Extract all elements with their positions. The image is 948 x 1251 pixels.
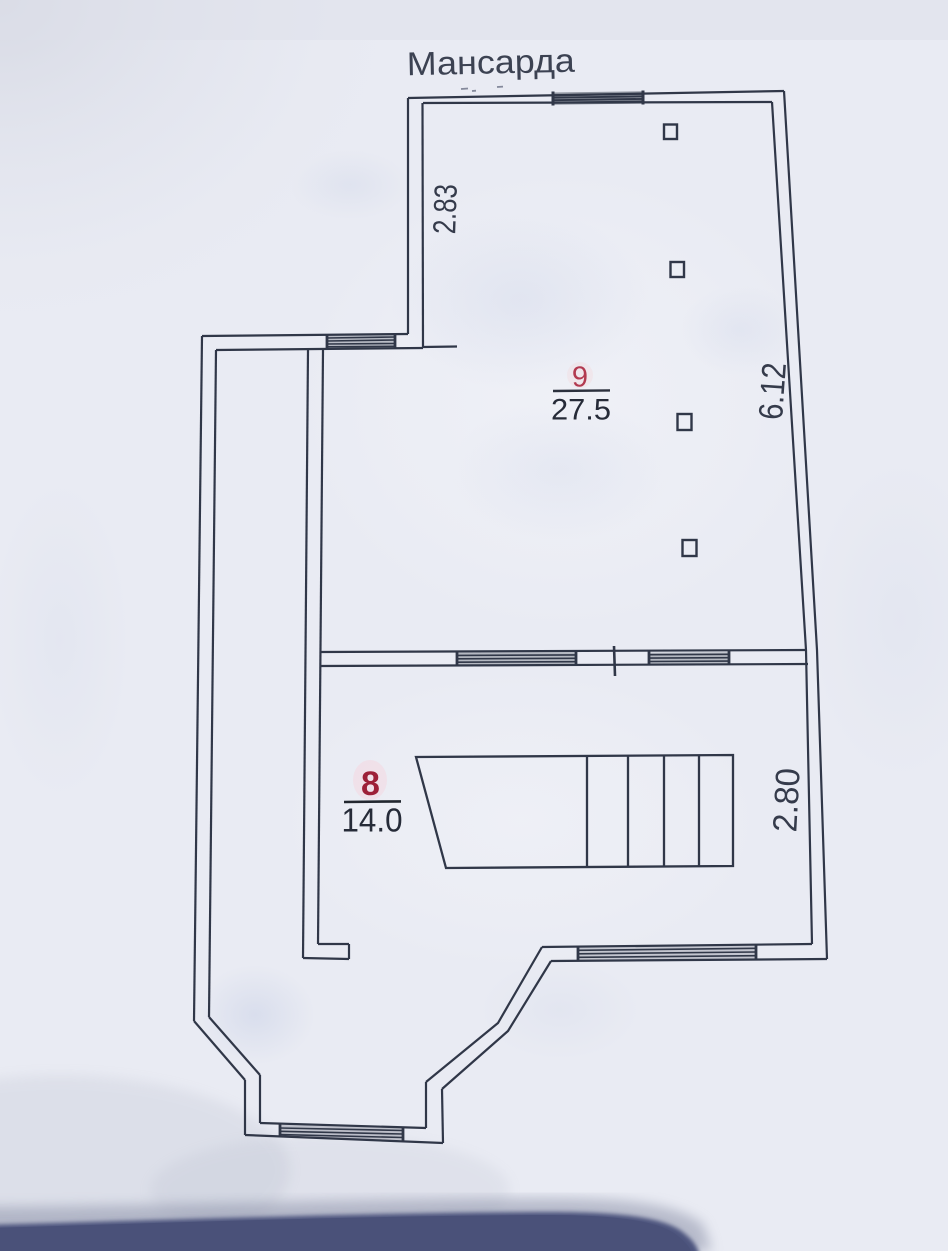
svg-text:2.83: 2.83: [426, 183, 464, 234]
svg-text:8: 8: [361, 765, 380, 803]
svg-text:6.12: 6.12: [752, 361, 794, 421]
svg-text:Мансарда: Мансарда: [406, 42, 575, 83]
svg-text:2.80: 2.80: [766, 767, 807, 833]
svg-text:9: 9: [572, 362, 588, 394]
svg-text:27.5: 27.5: [551, 394, 611, 427]
svg-text:14.0: 14.0: [342, 802, 403, 839]
